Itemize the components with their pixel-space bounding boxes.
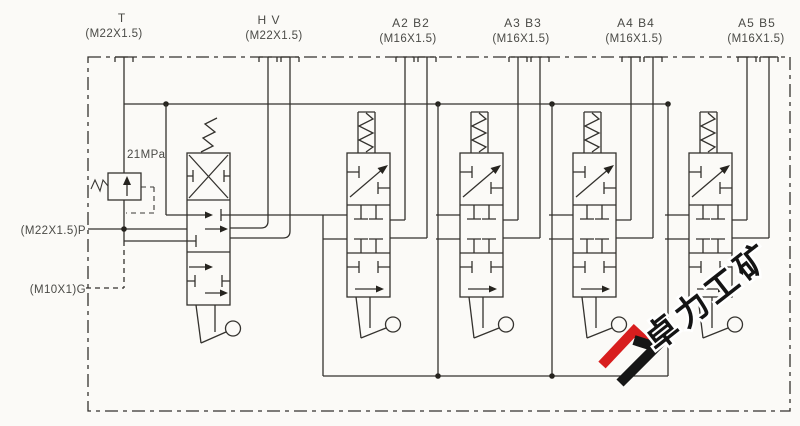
port-label-p: (M22X1.5)P <box>21 225 86 237</box>
port-thread-a5b5: (M16X1.5) <box>727 33 784 45</box>
port-label-hv: H V <box>257 13 280 27</box>
work-valve-section-3 <box>436 57 549 338</box>
carryover-line <box>230 215 323 376</box>
work-valve-section-4 <box>549 57 662 338</box>
hydraulic-schematic: T (M22X1.5) H V (M22X1.5) A2 B2 (M16X1.5… <box>0 0 800 426</box>
main-valve-section <box>187 118 241 343</box>
relief-spring-icon <box>91 180 108 191</box>
g-port-line <box>86 241 124 288</box>
port-thread-hv: (M22X1.5) <box>245 30 302 42</box>
port-label-a4b4: A4 B4 <box>617 16 655 30</box>
lever-icon <box>196 305 226 343</box>
v-port-line <box>230 57 290 238</box>
relief-valve <box>91 173 154 213</box>
lever-knob-icon <box>226 321 241 336</box>
port-thread-t: (M22X1.5) <box>85 28 142 40</box>
relief-pressure-label: 21MPa <box>127 149 166 161</box>
inlet-feed-line <box>166 104 187 215</box>
port-thread-a4b4: (M16X1.5) <box>605 33 662 45</box>
h-port-line <box>230 57 268 228</box>
watermark: 卓力工矿 <box>602 235 780 383</box>
schematic-canvas: T (M22X1.5) H V (M22X1.5) A2 B2 (M16X1.5… <box>0 0 800 426</box>
spring-icon <box>201 118 217 152</box>
port-thread-a2b2: (M16X1.5) <box>379 33 436 45</box>
valve-block-boundary <box>88 57 790 411</box>
port-label-g: (M10X1)G <box>30 284 86 296</box>
port-thread-a3b3: (M16X1.5) <box>492 33 549 45</box>
port-label-a5b5: A5 B5 <box>738 16 776 30</box>
port-label-a3b3: A3 B3 <box>504 16 542 30</box>
work-valve-section-2 <box>323 57 436 338</box>
port-label-t: T <box>118 11 126 25</box>
port-label-a2b2: A2 B2 <box>392 16 430 30</box>
